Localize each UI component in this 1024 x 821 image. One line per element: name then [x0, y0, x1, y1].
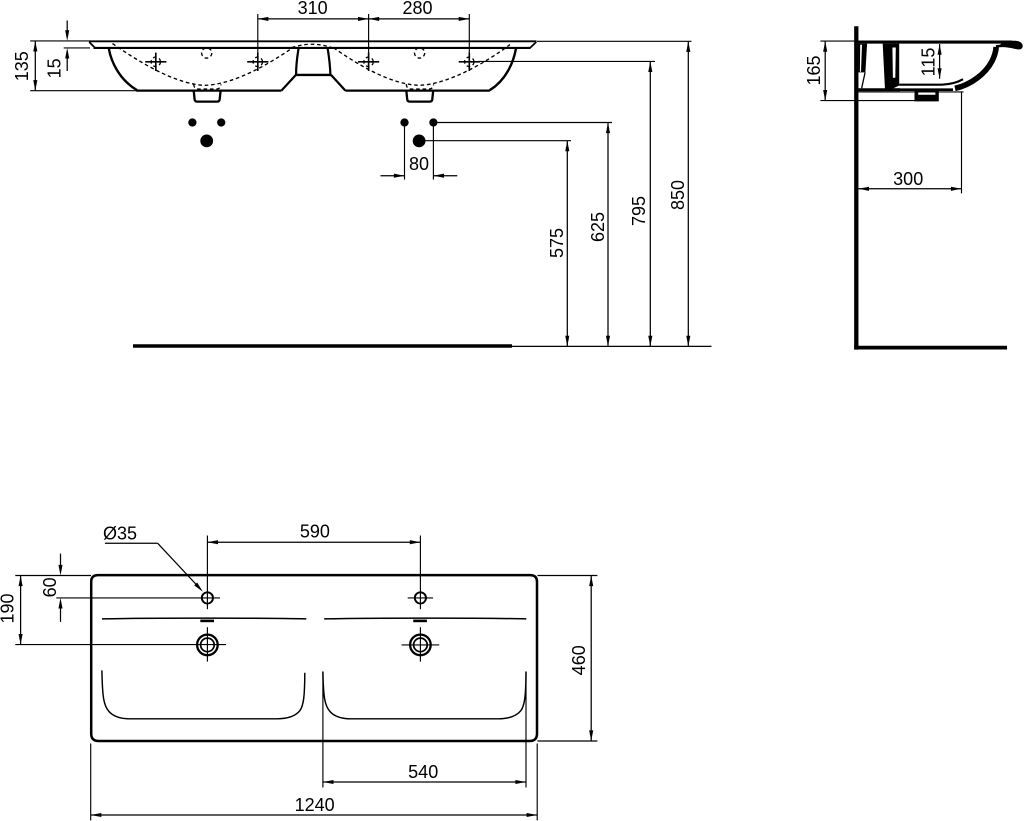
- svg-text:60: 60: [40, 577, 60, 597]
- svg-text:460: 460: [569, 645, 589, 675]
- svg-text:190: 190: [0, 593, 17, 623]
- svg-text:165: 165: [804, 55, 824, 85]
- svg-text:310: 310: [298, 0, 328, 18]
- svg-text:300: 300: [893, 169, 923, 189]
- svg-text:15: 15: [44, 58, 64, 78]
- svg-text:115: 115: [919, 48, 939, 77]
- svg-text:625: 625: [588, 212, 608, 242]
- svg-text:575: 575: [547, 228, 567, 258]
- svg-text:590: 590: [300, 522, 330, 542]
- svg-text:540: 540: [408, 762, 438, 782]
- svg-text:135: 135: [12, 51, 32, 81]
- svg-text:80: 80: [409, 154, 429, 174]
- svg-text:Ø35: Ø35: [103, 523, 137, 543]
- svg-text:850: 850: [668, 180, 688, 210]
- svg-text:1240: 1240: [295, 795, 335, 815]
- svg-text:280: 280: [402, 0, 432, 18]
- svg-text:795: 795: [629, 196, 649, 226]
